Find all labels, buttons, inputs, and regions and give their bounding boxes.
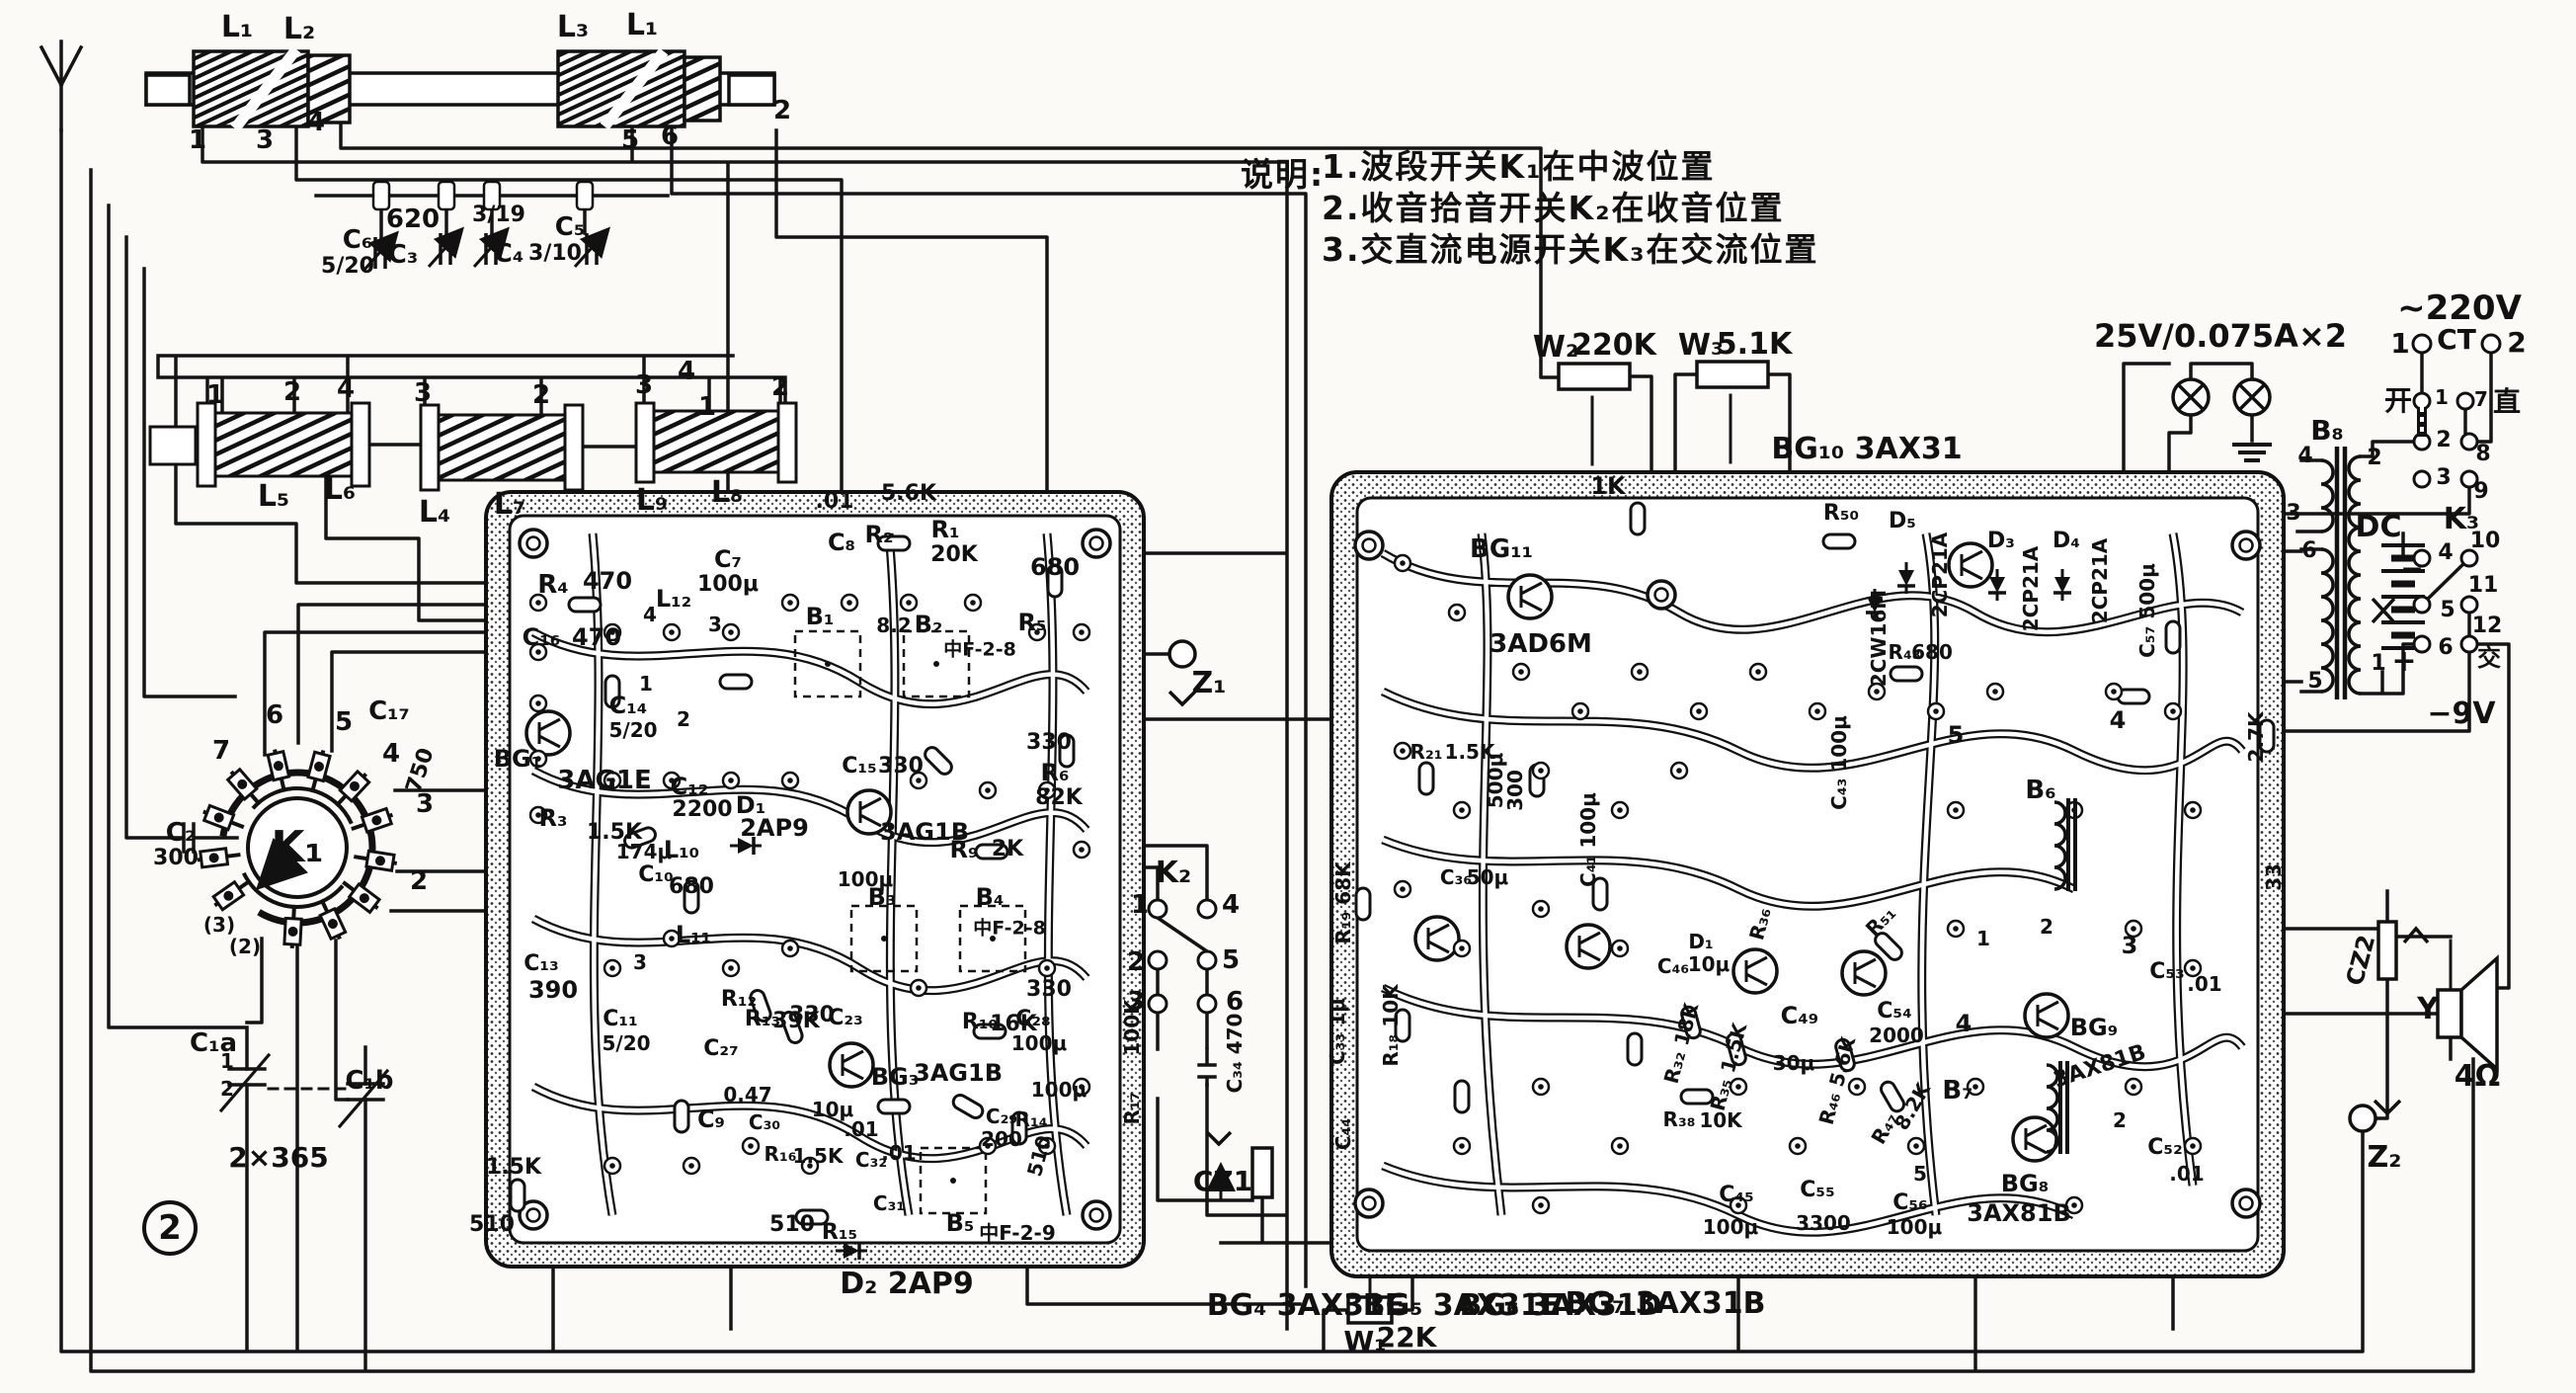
diagram-label: B₈ <box>2310 417 2344 445</box>
diagram-label: 10μ <box>1688 954 1731 974</box>
diagram-label: 6 <box>2301 540 2316 562</box>
diagram-label: 1.5K <box>793 1146 844 1166</box>
diagram-label: BG₇ 3AX31B <box>1566 1289 1766 1319</box>
pot-W2[interactable] <box>1559 364 1630 389</box>
diagram-label: .01 <box>2187 974 2221 994</box>
diagram-label: 1 <box>206 382 224 408</box>
diagram-label: B₇ <box>1942 1078 1972 1104</box>
diagram-label: 330 <box>878 756 924 778</box>
diagram-label: BG₈ <box>2001 1172 2050 1195</box>
diagram-label: 6 <box>1226 989 1244 1015</box>
diagram-label: 20K <box>930 544 978 566</box>
diagram-label: C₁₆ <box>523 625 561 649</box>
diagram-label: 2×365 <box>228 1144 328 1172</box>
diagram-label: C₃₁ <box>873 1193 905 1213</box>
diagram-label: 4 <box>307 110 325 135</box>
power-transformer-B8 <box>2321 447 2361 699</box>
diagram-label: C₅₃ <box>2149 961 2184 983</box>
diagram-label: C₂₈ <box>1015 1009 1050 1030</box>
diagram-label: C₆ <box>343 227 372 253</box>
diagram-label: 12 <box>2472 615 2503 637</box>
diagram-label: 5.6K <box>881 483 936 505</box>
diagram-label: L₁₂ <box>656 587 691 611</box>
diagram-label: C₂₃ <box>828 1008 862 1029</box>
diagram-label: C₁₄ <box>609 694 648 717</box>
diagram-label: 3 <box>635 372 653 398</box>
diagram-label: 3 <box>416 791 434 817</box>
diagram-label: L₁₀ <box>664 838 699 861</box>
diagram-label: CZ1 <box>1193 1168 1252 1195</box>
diagram-label: 5 <box>1222 947 1240 973</box>
jack-Z2[interactable] <box>2350 1101 2400 1131</box>
diagram-label: 5.1K <box>1717 330 1792 360</box>
diagram-label: 2CP21A <box>2090 538 2110 624</box>
diagram-label: 2AP9 <box>740 816 809 840</box>
diagram-label: C₃₄ 470 <box>1225 1014 1245 1094</box>
note-line-2: 2.收音拾音开关K₂在收音位置 <box>1322 182 1785 229</box>
diagram-label: 2 <box>220 1079 234 1099</box>
diagram-label: C₃ <box>388 242 418 268</box>
diagram-label: 3 <box>414 380 432 406</box>
diagram-label: BG₉ <box>2070 1016 2119 1039</box>
diagram-label: 330 <box>1026 979 1072 1001</box>
diagram-label: 2 <box>2113 1110 2127 1130</box>
diagram-label: C₁₂ <box>671 775 709 798</box>
diagram-label: 1 <box>2435 387 2449 407</box>
diagram-label: 390 <box>528 978 578 1002</box>
diagram-label: 2CW16M <box>1869 590 1889 687</box>
diagram-label: .01 <box>2169 1164 2204 1184</box>
diagram-label: R₄ <box>537 572 568 598</box>
diagram-label: Y <box>2417 995 2439 1024</box>
diagram-label: 6 <box>661 123 679 149</box>
diagram-label: C₅₂ <box>2147 1137 2182 1159</box>
diagram-label: 220K <box>1571 331 1656 361</box>
diagram-label: 510 <box>769 1214 815 1236</box>
diagram-label: BG₃ <box>871 1065 920 1089</box>
diagram-label: 3 <box>2436 467 2451 489</box>
diagram-label: 2000 <box>1869 1025 1924 1045</box>
diagram-label: 4 <box>678 359 695 384</box>
diagram-label: R₂₁ <box>1410 742 1443 762</box>
diagram-label: 1K <box>1590 474 1625 498</box>
diagram-label: 4 <box>643 605 657 624</box>
diagram-label: 300 <box>153 848 199 869</box>
diagram-label: B₄ <box>976 885 1005 909</box>
diagram-label: 4 <box>1222 892 1240 918</box>
diagram-label: 6 <box>2438 637 2453 659</box>
diagram-label: − <box>2400 555 2423 583</box>
diagram-label: B₁ <box>806 605 835 628</box>
diagram-label: 1 <box>189 127 206 153</box>
diagram-label: B₆ <box>2025 778 2055 803</box>
diagram-label: 30μ <box>1773 1053 1815 1073</box>
pilot-lamps <box>2173 379 2270 415</box>
diagram-label: 4Ω <box>2455 1062 2500 1092</box>
diagram-label: 1 <box>639 674 653 694</box>
diagram-label: D₄ <box>2053 531 2080 552</box>
diagram-label: C₇ <box>714 547 742 571</box>
diagram-label: 25V/0.075A×2 <box>2094 320 2347 352</box>
notes-heading: 说明: <box>1241 148 1325 196</box>
diagram-label: C₅ <box>555 214 585 240</box>
diagram-label: 5 <box>1913 1164 1927 1184</box>
coil-L3 <box>558 51 684 126</box>
diagram-label: 10 <box>2470 531 2501 552</box>
diagram-label: 2 <box>1127 949 1145 975</box>
diagram-label: 1 <box>220 1051 234 1071</box>
diagram-label: C₄₃ 100μ <box>1829 715 1849 810</box>
diagram-label: 2 <box>283 379 301 405</box>
diagram-label: 5 <box>335 709 353 735</box>
diagram-label: 3AD6M <box>1489 631 1592 657</box>
diagram-label: L₈ <box>711 478 743 508</box>
diagram-label: 2.7K <box>2246 712 2266 763</box>
diagram-label: Z₂ <box>2368 1143 2402 1173</box>
diagram-label: L₁ <box>221 13 253 42</box>
diagram-label: R₁₉ 68K <box>1333 861 1353 943</box>
diagram-label: −9V <box>2427 699 2495 729</box>
diagram-label: D₂ 2AP9 <box>840 1270 973 1299</box>
diagram-label: C₁₃ <box>523 953 558 975</box>
diagram-label: 9 <box>2473 481 2488 503</box>
figure-number-badge: 2 <box>142 1200 198 1256</box>
diagram-label: R₉ <box>950 838 979 861</box>
diagram-label: 2 <box>410 868 428 894</box>
diagram-label: C₉ <box>697 1107 725 1131</box>
coil-L5-L6 <box>215 413 354 476</box>
diagram-label: 100μ <box>1887 1217 1942 1237</box>
coil-L1b <box>684 57 720 121</box>
diagram-label: 5/20 <box>321 256 374 278</box>
diagram-label: 3 <box>633 952 647 972</box>
diagram-label: C₁₇ <box>368 698 410 724</box>
diagram-label: 100μ <box>1031 1080 1087 1100</box>
diagram-label: 2 <box>2507 329 2526 357</box>
diagram-label: 2CP21A <box>1930 533 1950 618</box>
diagram-label: 3AG1E <box>557 768 651 793</box>
diagram-label: B₃ <box>868 885 897 909</box>
diagram-label: C₈ <box>828 531 855 554</box>
coil-L4-L7 <box>439 415 567 480</box>
diagram-label: .01 <box>816 491 854 513</box>
diagram-label: 2 <box>2367 448 2381 469</box>
diagram-label: 50μ <box>1467 867 1509 887</box>
diagram-label: .01 <box>844 1119 878 1139</box>
speaker-Y <box>2438 958 2497 1069</box>
diagram-label: L₉ <box>636 486 668 516</box>
diagram-label: 4 <box>2438 542 2453 564</box>
diagram-label: C₃₀ <box>749 1112 780 1132</box>
diagram-label: 4 <box>1956 1012 1972 1035</box>
diagram-label: 7 <box>2474 389 2488 409</box>
diagram-label: 2 <box>532 382 550 408</box>
diagram-label: 1 <box>698 394 716 420</box>
diagram-label: 500μ <box>1486 753 1505 808</box>
diagram-label: B₅ <box>946 1211 975 1235</box>
diagram-label: 470 <box>583 569 632 593</box>
diagram-label: L₂ <box>283 15 315 44</box>
diagram-label: 交 <box>2477 646 2501 670</box>
diagram-label: B₂ <box>915 613 943 636</box>
diagram-label: Z₁ <box>1192 669 1227 698</box>
diagram-label: (3) <box>203 915 235 935</box>
diagram-label: R₁₄ <box>1015 1109 1048 1129</box>
diagram-label: C₂₉ <box>986 1106 1017 1126</box>
diagram-label: 100μ <box>1011 1033 1067 1053</box>
diagram-label: 2 <box>773 98 791 123</box>
diagram-label: 中F-2-8 <box>943 641 1016 660</box>
diagram-label: C₅₄ <box>1877 1001 1911 1023</box>
diagram-label: 5 <box>2307 671 2322 693</box>
diagram-label: C₁b <box>345 1068 393 1094</box>
diagram-label: R₁₈ 10K <box>1381 984 1401 1066</box>
diagram-label: R₂ <box>865 523 894 546</box>
socket-CZ2[interactable] <box>2378 922 2428 979</box>
diagram-label: L₇ <box>494 490 525 520</box>
switch-K2[interactable] <box>1149 900 1216 1013</box>
diagram-label: 680 <box>1911 642 1953 662</box>
diagram-label: R₅ <box>1018 611 1047 634</box>
diagram-label: 200 <box>981 1129 1022 1149</box>
diagram-label: L₆ <box>324 475 356 505</box>
diagram-label: 10μ <box>812 1100 854 1119</box>
diagram-label: 22K <box>1377 1324 1437 1352</box>
diagram-label: K₁ <box>271 826 323 869</box>
diagram-label: 100K <box>1122 999 1142 1055</box>
diagram-label: 5 <box>2440 600 2455 621</box>
diagram-label: 3AX81B <box>1967 1201 2070 1225</box>
diagram-label: 5 <box>1948 723 1965 747</box>
diagram-label: 2 <box>2436 430 2451 451</box>
diagram-label: 100μ <box>697 574 759 596</box>
diagram-label: 1 <box>2390 330 2409 358</box>
diagram-label: C₄₅ <box>1719 1185 1753 1206</box>
diagram-label: C₄₉ <box>1781 1004 1819 1027</box>
diagram-label: BG₁₁ <box>1470 536 1533 562</box>
diagram-label: 1 <box>1976 929 1990 948</box>
diagram-label: 3AG1B <box>914 1061 1003 1085</box>
diagram-label: L₃ <box>557 13 589 42</box>
diagram-label: 4 <box>337 376 355 402</box>
note-line-3: 3.交直流电源开关K₃在交流位置 <box>1322 223 1819 271</box>
diagram-label: C₁₅ <box>842 756 876 778</box>
antenna-icon <box>41 41 81 130</box>
diagram-label: C₄ <box>494 241 523 267</box>
diagram-label: 0.47 <box>723 1085 771 1105</box>
diagram-label: 直 <box>2493 388 2521 416</box>
diagram-label: C₂ <box>166 820 196 846</box>
diagram-label: BG₁₀ 3AX31 <box>1771 435 1962 464</box>
diagram-label: C₃₃ 1μ <box>1328 998 1347 1065</box>
diagram-label: 3 <box>256 127 274 153</box>
schematic-canvas: L₁L₂L₃L₁134562C₆5/20620C₃3/19C₄C₅3/10124… <box>0 0 2576 1393</box>
diagram-label: 33 <box>2264 863 2284 891</box>
diagram-label: R₃₈ <box>1663 1109 1696 1129</box>
diagram-label: C₅₅ <box>1800 1180 1834 1201</box>
diagram-label: 1 <box>2371 653 2385 675</box>
diagram-label: R₆ <box>1041 761 1070 784</box>
diagram-label: 680 <box>669 876 714 898</box>
diagram-label: R₁₆ <box>765 1144 797 1164</box>
diagram-label: 中F-2-9 <box>979 1223 1055 1243</box>
diagram-label: C₅₆ <box>1892 1192 1927 1214</box>
diagram-label: 7 <box>212 738 230 764</box>
diagram-label: 2K <box>992 839 1023 860</box>
diagram-label: 8 <box>2475 444 2490 465</box>
diagram-label: 3/19 <box>472 205 525 226</box>
diagram-label: 10K <box>1699 1110 1741 1130</box>
diagram-label: 4 <box>382 741 400 767</box>
diagram-label: 5/20 <box>608 720 657 740</box>
diagram-label: .01 <box>881 1143 916 1163</box>
diagram-label: 3300 <box>1796 1213 1851 1233</box>
diagram-label: BG₁ <box>494 747 542 771</box>
diagram-label: C₄₄ <box>1333 1118 1353 1150</box>
diagram-label: L₁ <box>626 11 658 41</box>
diagram-label: 1.5K <box>486 1157 541 1179</box>
diagram-label: C₅₇ 500μ <box>2137 563 2157 658</box>
diagram-label: R₁₅ <box>822 1222 857 1244</box>
diagram-label: R₁ <box>931 518 960 541</box>
diagram-label: 3 <box>2286 503 2300 525</box>
note-line-1: 1.波段开关K₁在中波位置 <box>1322 140 1716 188</box>
diagram-label: 2200 <box>672 799 732 821</box>
diagram-label: 5 <box>621 127 639 153</box>
diagram-label: R₅₀ <box>1823 503 1859 525</box>
diagram-label: D₃ <box>1987 531 2015 552</box>
diagram-label: 300 <box>1505 770 1525 811</box>
diagram-label: 100μ <box>1703 1217 1758 1237</box>
ferrite-rod-antenna <box>146 49 774 128</box>
diagram-label: 4 <box>2110 708 2127 732</box>
diagram-label: ~220V <box>2397 291 2522 325</box>
pot-W3[interactable] <box>1697 362 1768 387</box>
diagram-label: K₂ <box>1156 859 1191 888</box>
diagram-label: 82K <box>1035 787 1083 809</box>
diagram-label: 8.2 <box>876 615 911 635</box>
diagram-label: 4 <box>2297 446 2312 467</box>
diagram-label: R₁₇ <box>1122 1093 1142 1125</box>
diagram-label: C₄₆ <box>1657 956 1689 976</box>
diagram-label: (2) <box>229 937 261 956</box>
diagram-label: 510 <box>469 1214 515 1236</box>
diagram-label: 1 <box>1131 892 1149 918</box>
diagram-label: 开 <box>2384 387 2412 415</box>
diagram-label: 5/20 <box>602 1033 650 1053</box>
diagram-label: 6 <box>266 702 283 728</box>
diagram-label: 680 <box>1030 555 1080 579</box>
coil-L9-L8 <box>654 411 780 472</box>
diagram-label: DC <box>2356 513 2402 542</box>
diagram-label: 2CP21A <box>2021 546 2041 632</box>
diagram-label: 11 <box>2468 575 2499 597</box>
diagram-label: L₅ <box>258 482 289 512</box>
diagram-label: 3 <box>2122 934 2138 957</box>
diagram-label: L₄ <box>419 498 450 528</box>
diagram-label: 2 <box>2040 917 2053 937</box>
diagram-label: D₁ <box>1688 932 1713 951</box>
diagram-label: 470 <box>572 625 621 649</box>
diagram-label: 330 <box>1026 732 1072 754</box>
diagram-label: 2 <box>677 709 690 729</box>
diagram-label: + <box>2391 647 2416 677</box>
diagram-label: C₄₁ 100μ <box>1578 792 1598 887</box>
diagram-label: 中F-2-8 <box>973 920 1046 939</box>
diagram-label: D₅ <box>1889 511 1916 533</box>
diagram-label: 3/10 <box>528 243 582 265</box>
diagram-label: CT <box>2437 326 2476 354</box>
diagram-label: L₁₁ <box>676 923 711 946</box>
diagram-label: 2 <box>771 374 789 400</box>
diagram-label: R₃ <box>539 806 568 830</box>
diagram-label: 620 <box>386 206 440 232</box>
diagram-label: 3 <box>708 615 722 634</box>
diagram-label: C₂₇ <box>703 1038 738 1060</box>
diagram-label: C₁₁ <box>603 1009 637 1030</box>
